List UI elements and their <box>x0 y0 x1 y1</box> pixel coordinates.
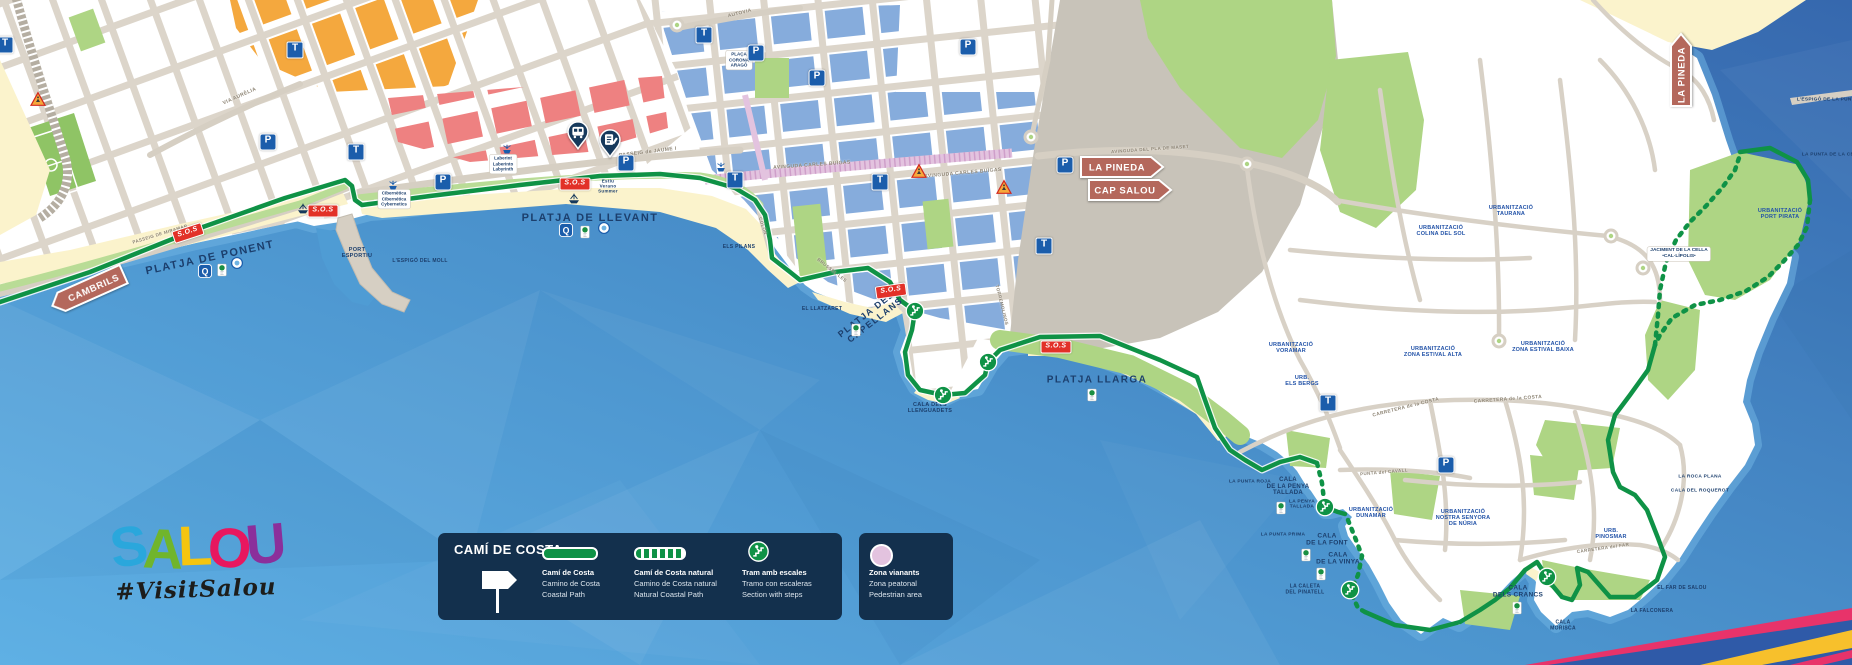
legend-item-coastal-path: Camí de Costa Camino de Costa Coastal Pa… <box>542 567 628 600</box>
tram-icon: T <box>872 174 889 191</box>
flag-icon <box>1315 565 1328 584</box>
map-label: AVINGUDA DEL PLA DE MASET <box>1111 144 1189 154</box>
parking-icon: P <box>260 134 277 151</box>
ship-icon <box>296 201 311 216</box>
stairs-icon <box>1316 498 1335 517</box>
flag-icon <box>579 223 592 242</box>
flag-icon <box>1086 386 1099 405</box>
flag-icon <box>216 261 229 280</box>
map-label: AVINGUDA CARLES BUÏGAS <box>773 160 851 171</box>
pedestrian-zone-swatch <box>870 544 893 567</box>
legend-stairs-icon <box>748 541 769 562</box>
sos-icon: S.O.S <box>560 178 591 191</box>
map-label: URBANITZACIÓZONA ESTIVAL BAIXA <box>1512 341 1574 353</box>
map-label: PLATJA LLARGA <box>1047 374 1147 385</box>
map-label: LA FALCONERA <box>1631 609 1674 615</box>
map-label: URBANITZACIÓVORAMAR <box>1269 342 1313 354</box>
logo-letter: L <box>177 518 208 575</box>
logo-letter: S <box>107 517 147 577</box>
map-label: URBANITZACIÓTAURANA <box>1489 205 1533 217</box>
map-label: CARRETERA de la COSTA <box>1474 395 1543 405</box>
legend-cami-de-costa: CAMÍ DE COSTA Camí de Costa Camino de Co… <box>438 533 842 620</box>
parking-icon: P <box>809 70 826 87</box>
flag-icon <box>1275 499 1288 518</box>
tram-icon: T <box>1320 395 1337 412</box>
map-label: PUNTA del CAVALL <box>1360 467 1408 476</box>
visit-salou-hashtag: #VisitSalou <box>96 573 297 607</box>
map-label: URBANITZACIÓPORT PIRATA <box>1758 208 1802 220</box>
logo-letter: O <box>205 519 247 578</box>
svg-text:LA PINEDA: LA PINEDA <box>1089 163 1145 174</box>
warn-icon <box>30 91 46 107</box>
parking-icon: P <box>1057 157 1074 174</box>
map-label: TORREMOLINOS <box>995 284 1010 325</box>
parking-icon: P <box>435 174 452 191</box>
pininfo-icon <box>595 128 625 158</box>
parking-icon: P <box>748 45 765 62</box>
sign-la-pineda: LA PINEDA <box>1669 32 1693 108</box>
legend-pedestrian: Zona vianants Zona peatonal Pedestrian a… <box>859 533 953 620</box>
map-label: URB.PINOSMAR <box>1595 528 1626 540</box>
map-label: BRUSSEL·LES <box>816 257 848 283</box>
tram-icon: T <box>727 172 744 189</box>
salou-coastal-map: Q <box>0 0 1852 665</box>
tram-icon: T <box>1036 238 1053 255</box>
parking-icon: P <box>1438 457 1455 474</box>
logo-letter: A <box>142 520 179 577</box>
pinbus-icon <box>563 120 593 150</box>
map-label: ELS PILANS <box>723 245 755 251</box>
legend-item-pedestrian: Zona vianants Zona peatonal Pedestrian a… <box>869 567 949 600</box>
stairs-icon <box>934 386 953 405</box>
svg-text:CAP SALOU: CAP SALOU <box>1094 186 1155 197</box>
flag-icon <box>1511 599 1524 618</box>
tram-icon: T <box>696 27 713 44</box>
logo-letter: U <box>244 515 284 574</box>
fountain-icon <box>714 161 728 175</box>
tram-icon: T <box>0 37 14 54</box>
map-label: L'ESPIGÓ DEL MOLL <box>392 259 447 265</box>
map-label: CALADELS CRANCS <box>1493 585 1543 600</box>
map-label: URBANITZACIÓNOSTRA SENYORADE NÚRIA <box>1436 509 1491 527</box>
stairs-icon <box>906 302 925 321</box>
map-label: URBANITZACIÓDUNAMAR <box>1349 507 1393 519</box>
svg-text:LA PINEDA: LA PINEDA <box>1677 47 1688 103</box>
salou-logo-letters: SALOU <box>96 518 296 574</box>
sos-icon: S.O.S <box>1041 341 1072 354</box>
stairs-icon <box>1341 581 1360 600</box>
map-label: EstiuVeranoSummer <box>598 178 618 193</box>
map-label: CARRETERA de la COSTA <box>1372 397 1440 419</box>
map-label: URB.ELS BERGS <box>1285 375 1319 387</box>
sign-la-pineda: LA PINEDA <box>1079 155 1165 179</box>
map-label: LA PUNTA PRIMA <box>1261 532 1306 537</box>
map-label: AVINGUDA CARLES BUÏGAS <box>924 168 1002 180</box>
map-label: LA PUNTA ROJA <box>1229 479 1271 484</box>
iso-icon <box>598 222 611 235</box>
map-label: CALAMORISCA <box>1550 620 1576 631</box>
map-label: EL FAR DE SALOU <box>1657 586 1706 592</box>
map-label: LA ROCA PLANA <box>1678 474 1721 479</box>
parking-icon: P <box>960 39 977 56</box>
map-label: LA CALETADEL PINATELL <box>1286 584 1325 595</box>
map-label: CARRETERA del FAR <box>1576 542 1629 554</box>
stairs-icon <box>979 353 998 372</box>
stairs-icon <box>1538 568 1557 587</box>
tram-icon: T <box>287 42 304 59</box>
legend-swatch-solid-path <box>542 547 598 560</box>
q-icon <box>559 223 574 238</box>
map-label: VIA AURÈLIA <box>222 87 257 107</box>
signpost-icon <box>474 563 522 615</box>
flag-icon <box>850 321 863 340</box>
sign-cap-salou: CAP SALOU <box>1087 178 1173 202</box>
legend-item-natural-path: Camí de Costa natural Camino de Costa na… <box>634 567 730 600</box>
map-label: LA PENYATALLADA <box>1289 500 1315 511</box>
iso-icon <box>231 257 244 270</box>
q-icon <box>198 264 213 279</box>
map-label: LA PUNTA DE LA CELLA <box>1802 152 1852 157</box>
map-label: URBANITZACIÓZONA ESTIVAL ALTA <box>1404 346 1462 358</box>
map-label: COLÓN <box>758 217 768 236</box>
ship-icon <box>567 191 582 206</box>
sos-icon: S.O.S <box>308 205 339 218</box>
map-label: URBANITZACIÓCOLINA DEL SOL <box>1417 225 1466 237</box>
map-label: L'ESPIGÓ DE LA PUNTA P <box>1797 97 1852 102</box>
warn-icon <box>996 179 1012 195</box>
legend-swatch-natural-path <box>634 547 686 560</box>
map-label: PORTESPORTIU <box>342 247 373 259</box>
warn-icon <box>911 163 927 179</box>
fountain-icon <box>500 143 514 157</box>
fountain-icon <box>386 179 400 193</box>
map-label: CALA DEL ROQUEROT <box>1671 488 1729 493</box>
map-label: LaberintLaberintoLabyrinth <box>490 155 517 174</box>
salou-logo: SALOU #VisitSalou <box>96 518 296 603</box>
map-label: AUTOVIA <box>728 8 753 19</box>
map-label: EL LLATZARET <box>802 307 842 313</box>
map-label: CALADE LA PENYATALLADA <box>1267 477 1310 497</box>
map-label: JACIMENT DE LA CELLA•CAL·LÍPOLIS• <box>1647 247 1710 261</box>
sign-cambrils: CAMBRILS <box>46 262 131 317</box>
legend-item-steps: Tram amb escales Tramo con escaleras Sec… <box>742 567 834 600</box>
tram-icon: T <box>348 144 365 161</box>
flag-icon <box>1300 546 1313 565</box>
